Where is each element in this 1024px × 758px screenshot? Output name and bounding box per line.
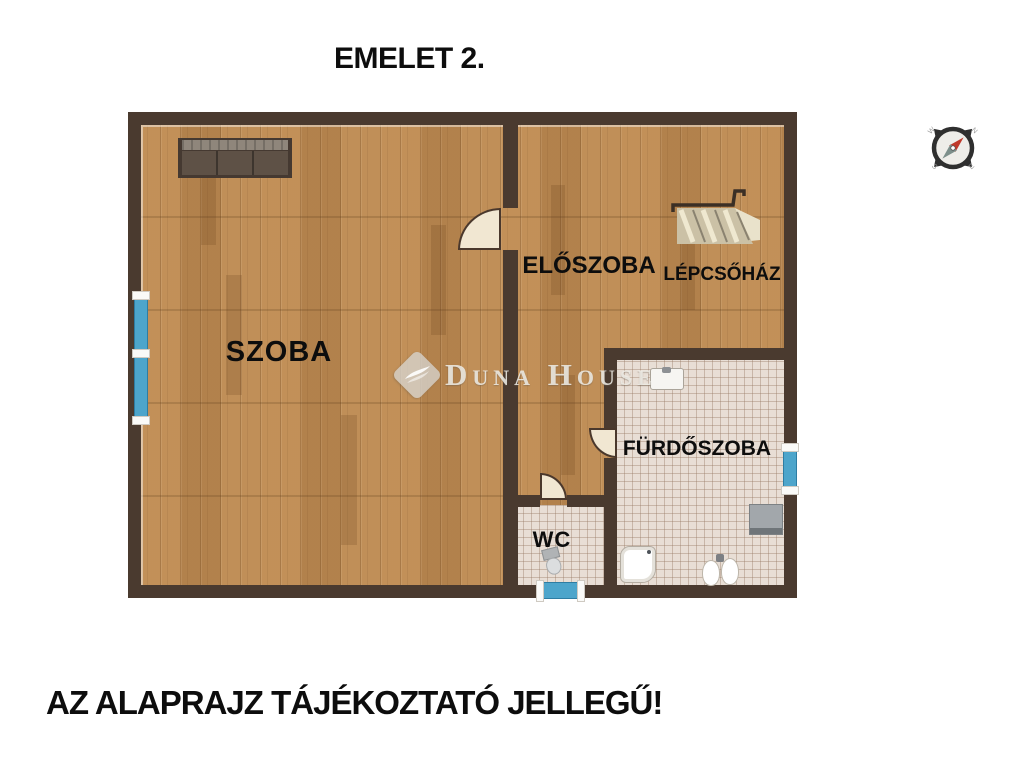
- wood-plank-shade: [341, 415, 357, 545]
- toilet-icon: [702, 560, 720, 586]
- sofa-seat: [182, 151, 288, 175]
- sofa-icon: [178, 138, 292, 178]
- compass-south-label: S: [930, 163, 938, 171]
- wall-szoba-lower: [503, 250, 518, 585]
- window-wc-cap: [577, 580, 585, 602]
- compass-east-label: E: [968, 163, 976, 171]
- shower-tray-icon: [620, 546, 656, 583]
- window-bathroom: [783, 449, 797, 489]
- window-wc-cap: [536, 580, 544, 602]
- room-label-furdoszoba: FÜRDŐSZOBA: [617, 437, 777, 461]
- window-wc: [542, 582, 579, 599]
- wall-szoba-upper: [503, 125, 518, 208]
- floor-plan: SZOBA ELŐSZOBA LÉPCSŐHÁZ FÜRDŐSZOBA WC D…: [128, 112, 797, 598]
- wall-bathroom-left-lower: [604, 458, 617, 585]
- watermark: Duna House: [399, 357, 657, 393]
- duna-house-logo: [392, 350, 443, 401]
- page-title: EMELET 2.: [334, 42, 485, 76]
- room-label-eloszoba: ELŐSZOBA: [509, 252, 669, 280]
- wood-plank-shade: [226, 275, 242, 395]
- window-left-cap: [132, 291, 150, 300]
- plumbing-valve-icon: [716, 554, 724, 562]
- window-left-divider: [132, 349, 150, 358]
- disclaimer-text: AZ ALAPRAJZ TÁJÉKOZTATÓ JELLEGŰ!: [46, 684, 662, 722]
- sofa-back: [182, 140, 288, 150]
- washing-machine-icon: [749, 504, 783, 535]
- staircase-icon: [665, 188, 765, 248]
- window-bathroom-cap: [781, 443, 799, 452]
- wood-plank-shade: [431, 225, 446, 335]
- room-label-wc: WC: [522, 527, 582, 553]
- compass-icon: W N S E: [921, 116, 985, 180]
- wall-wc-top-left: [518, 495, 540, 507]
- room-label-szoba: SZOBA: [199, 336, 359, 369]
- window-bathroom-cap: [781, 486, 799, 495]
- watermark-brand: Duna House: [445, 357, 657, 393]
- wall-wc-top-right: [567, 495, 617, 507]
- window-left-cap: [132, 416, 150, 425]
- bidet-icon: [721, 558, 739, 585]
- room-label-lepcsohaz: LÉPCSŐHÁZ: [647, 264, 797, 286]
